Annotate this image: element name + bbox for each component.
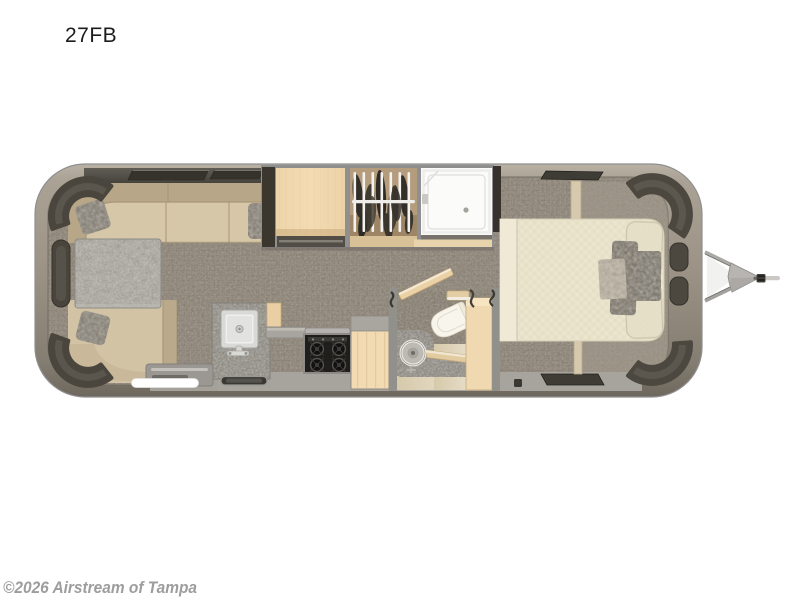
svg-text:27FB: 27FB — [65, 24, 117, 47]
svg-text:©2026 Airstream of Tampa: ©2026 Airstream of Tampa — [3, 579, 197, 597]
